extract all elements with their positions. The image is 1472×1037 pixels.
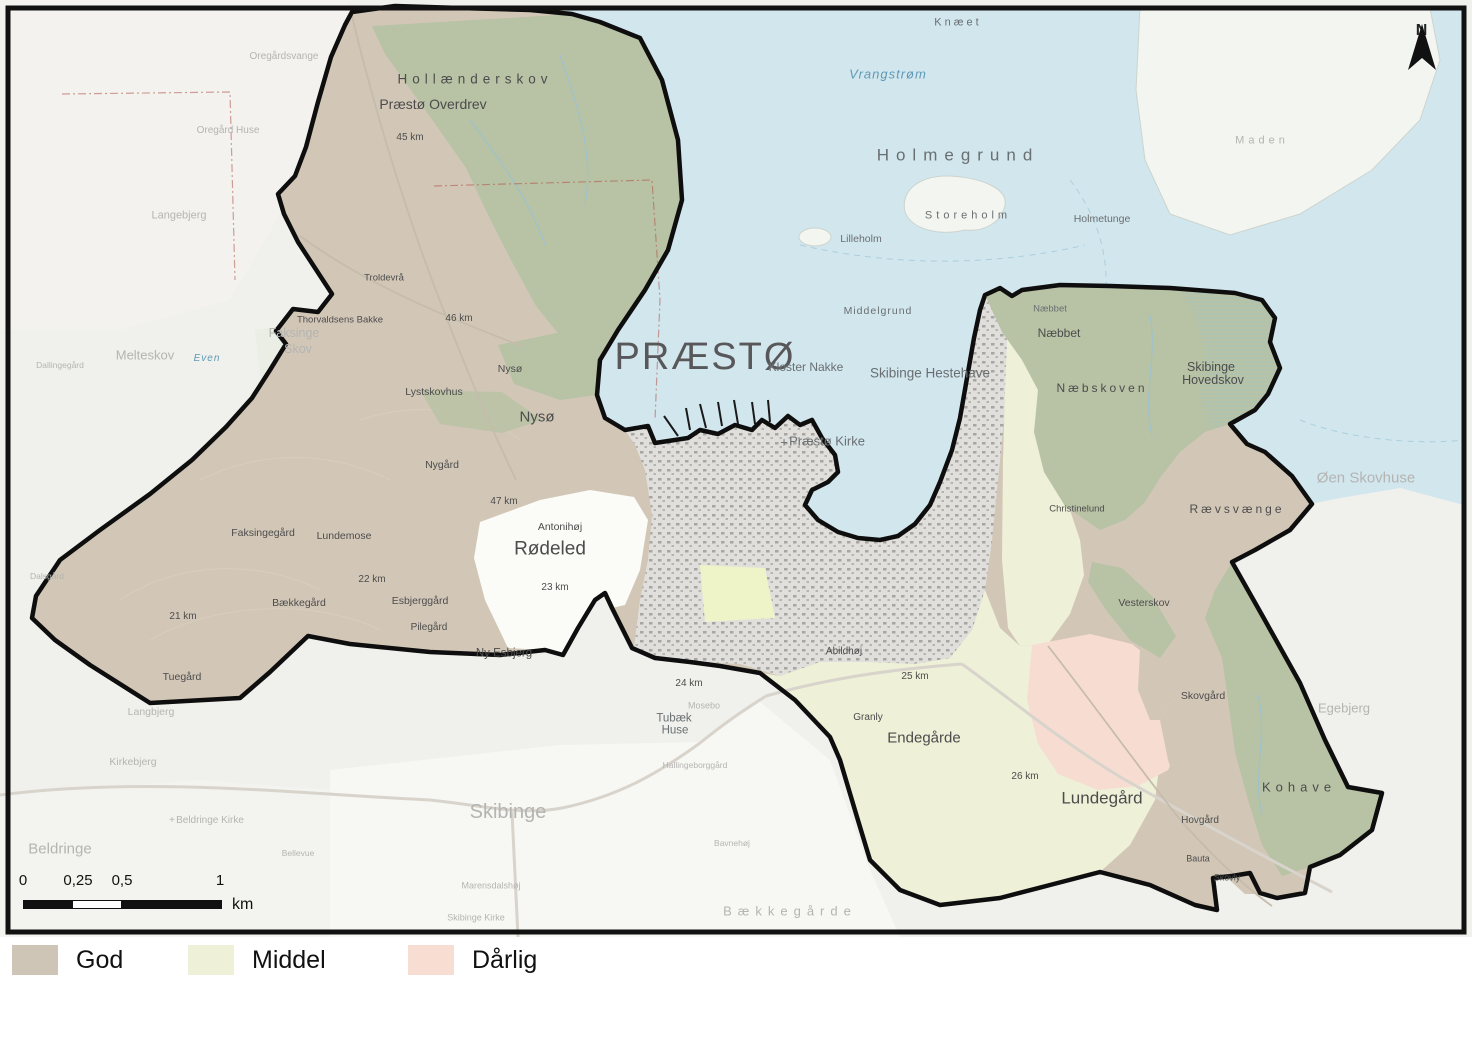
legend-swatch — [408, 945, 454, 975]
scale-tick-label: 0,5 — [112, 872, 133, 889]
legend-item-god: God — [12, 943, 123, 977]
storeholm-island — [904, 176, 1005, 232]
legend-swatch — [12, 945, 58, 975]
scale-segment — [24, 901, 73, 908]
legend-item-dårlig: Dårlig — [408, 943, 537, 977]
north-arrow-icon — [1398, 22, 1446, 74]
scale-tick-label: 0 — [19, 872, 27, 889]
scale-bar: 00,250,51 km — [0, 868, 280, 918]
legend-label: Dårlig — [472, 946, 537, 975]
scale-unit: km — [232, 896, 253, 914]
map-canvas: KnæetVrangstrømHolmegrundStoreholmLilleh… — [0, 0, 1472, 937]
map-drawing — [0, 0, 1472, 937]
legend-label: Middel — [252, 946, 326, 975]
legend-label: God — [76, 946, 123, 975]
map-figure: KnæetVrangstrømHolmegrundStoreholmLilleh… — [0, 0, 1472, 1037]
scale-tick-label: 0,25 — [63, 872, 92, 889]
north-indicator: N — [1398, 22, 1446, 94]
legend-item-middel: Middel — [188, 943, 326, 977]
scale-tick-label: 1 — [216, 872, 224, 889]
town-green-field — [700, 565, 775, 622]
legend: GodMiddelDårlig — [0, 937, 1472, 1037]
lilleholm-island — [799, 228, 831, 246]
legend-swatch — [188, 945, 234, 975]
scale-segment — [121, 901, 221, 908]
scale-bar-graphic — [23, 900, 222, 909]
scale-segment — [73, 901, 122, 908]
